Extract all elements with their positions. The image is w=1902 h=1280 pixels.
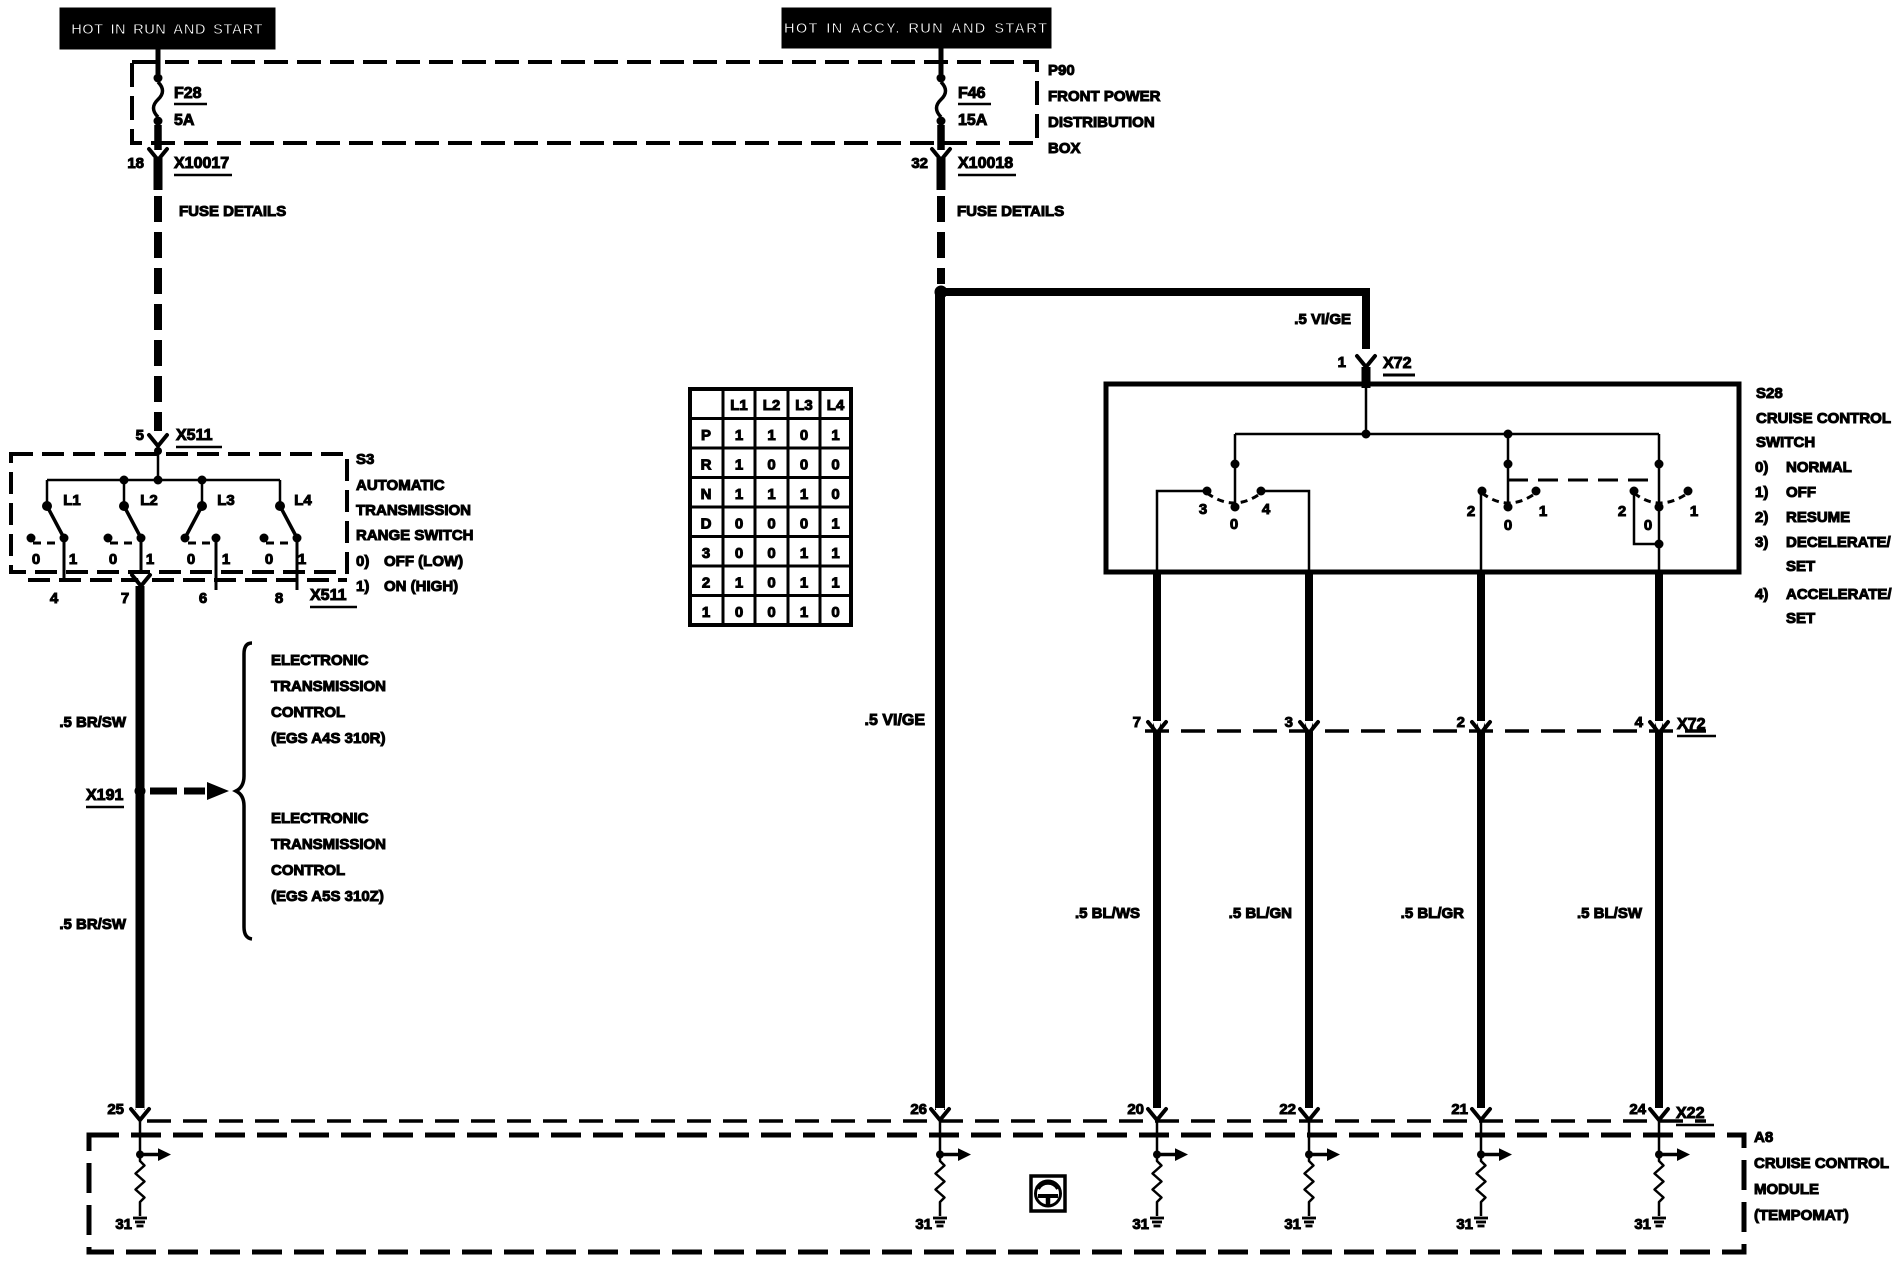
- svg-text:1: 1: [831, 575, 839, 592]
- svg-text:X72: X72: [1677, 716, 1706, 733]
- svg-text:SWITCH: SWITCH: [1756, 434, 1815, 451]
- svg-text:(EGS A5S 310Z): (EGS A5S 310Z): [271, 888, 384, 905]
- svg-text:R: R: [701, 457, 712, 474]
- svg-text:0: 0: [735, 604, 743, 621]
- svg-text:1: 1: [69, 551, 77, 568]
- svg-text:2: 2: [1618, 503, 1626, 520]
- svg-text:21: 21: [1451, 1101, 1468, 1118]
- svg-text:P: P: [701, 427, 711, 444]
- svg-text:22: 22: [1279, 1101, 1296, 1118]
- svg-text:S3: S3: [356, 451, 374, 468]
- svg-text:1: 1: [800, 575, 808, 592]
- svg-text:25: 25: [107, 1101, 124, 1118]
- svg-text:.5 VI/GE: .5 VI/GE: [1294, 311, 1351, 328]
- svg-text:2: 2: [1467, 503, 1475, 520]
- svg-text:X511: X511: [310, 587, 347, 604]
- svg-text:.5 BL/GR: .5 BL/GR: [1401, 905, 1465, 922]
- svg-text:FUSE DETAILS: FUSE DETAILS: [957, 203, 1064, 220]
- svg-text:20: 20: [1127, 1101, 1144, 1118]
- svg-text:1: 1: [222, 551, 230, 568]
- svg-text:0: 0: [265, 551, 273, 568]
- svg-text:SET: SET: [1786, 558, 1815, 575]
- svg-text:0: 0: [1644, 517, 1652, 534]
- svg-text:4: 4: [1635, 714, 1644, 731]
- svg-text:F28: F28: [174, 85, 202, 102]
- svg-text:X10017: X10017: [174, 155, 229, 172]
- svg-text:L4: L4: [827, 397, 845, 414]
- svg-text:1: 1: [800, 486, 808, 503]
- svg-text:1: 1: [298, 551, 306, 568]
- svg-text:0: 0: [800, 427, 808, 444]
- svg-text:RESUME: RESUME: [1786, 509, 1850, 526]
- svg-text:0: 0: [767, 604, 775, 621]
- svg-text:0: 0: [767, 457, 775, 474]
- svg-text:31: 31: [1284, 1216, 1301, 1233]
- svg-text:X10018: X10018: [958, 155, 1013, 172]
- svg-text:TRANSMISSION: TRANSMISSION: [271, 836, 386, 853]
- svg-text:D: D: [701, 516, 712, 533]
- svg-text:8: 8: [275, 590, 283, 607]
- svg-text:0: 0: [32, 551, 40, 568]
- svg-text:0: 0: [831, 486, 839, 503]
- svg-text:1: 1: [800, 604, 808, 621]
- svg-text:CRUISE CONTROL: CRUISE CONTROL: [1754, 1155, 1889, 1172]
- svg-text:1: 1: [831, 427, 839, 444]
- svg-text:HOT IN RUN AND START: HOT IN RUN AND START: [71, 21, 263, 38]
- svg-text:ACCELERATE/: ACCELERATE/: [1786, 586, 1892, 603]
- svg-text:L4: L4: [294, 492, 312, 509]
- svg-text:MODULE: MODULE: [1754, 1181, 1819, 1198]
- svg-text:1: 1: [800, 545, 808, 562]
- svg-text:1: 1: [831, 516, 839, 533]
- svg-text:0: 0: [767, 575, 775, 592]
- svg-text:32: 32: [911, 155, 928, 172]
- svg-text:0: 0: [767, 516, 775, 533]
- svg-text:DISTRIBUTION: DISTRIBUTION: [1048, 114, 1155, 131]
- svg-text:26: 26: [910, 1101, 927, 1118]
- svg-text:2): 2): [1755, 509, 1768, 526]
- svg-text:15A: 15A: [958, 112, 988, 129]
- svg-text:1: 1: [767, 486, 775, 503]
- svg-text:AUTOMATIC: AUTOMATIC: [356, 477, 445, 494]
- svg-text:L1: L1: [63, 492, 81, 509]
- svg-text:0: 0: [831, 604, 839, 621]
- svg-text:0: 0: [735, 545, 743, 562]
- svg-text:FUSE DETAILS: FUSE DETAILS: [179, 203, 286, 220]
- svg-text:L2: L2: [140, 492, 158, 509]
- svg-text:1): 1): [1755, 484, 1768, 501]
- svg-text:18: 18: [127, 155, 144, 172]
- svg-text:31: 31: [115, 1216, 132, 1233]
- svg-text:X72: X72: [1383, 355, 1412, 372]
- svg-text:NORMAL: NORMAL: [1786, 459, 1852, 476]
- svg-text:24: 24: [1629, 1101, 1646, 1118]
- svg-text:F46: F46: [958, 85, 986, 102]
- svg-text:7: 7: [1133, 714, 1141, 731]
- svg-text:1: 1: [1539, 503, 1547, 520]
- svg-text:2: 2: [702, 575, 710, 592]
- svg-text:RANGE SWITCH: RANGE SWITCH: [356, 527, 474, 544]
- svg-text:0): 0): [1755, 459, 1768, 476]
- svg-text:L1: L1: [730, 397, 748, 414]
- svg-text:ELECTRONIC: ELECTRONIC: [271, 652, 369, 669]
- svg-text:0: 0: [767, 545, 775, 562]
- svg-text:P90: P90: [1048, 62, 1075, 79]
- svg-text:31: 31: [915, 1216, 932, 1233]
- svg-text:.5 BL/GN: .5 BL/GN: [1229, 905, 1292, 922]
- svg-text:FRONT POWER: FRONT POWER: [1048, 88, 1161, 105]
- svg-text:5A: 5A: [174, 112, 195, 129]
- svg-text:ON (HIGH): ON (HIGH): [384, 578, 458, 595]
- svg-text:0: 0: [735, 516, 743, 533]
- svg-text:X191: X191: [86, 787, 123, 804]
- svg-text:1: 1: [767, 427, 775, 444]
- svg-text:OFF: OFF: [1786, 484, 1816, 501]
- svg-text:X511: X511: [176, 427, 213, 444]
- svg-text:31: 31: [1456, 1216, 1473, 1233]
- svg-text:4: 4: [50, 590, 59, 607]
- svg-text:X22: X22: [1676, 1105, 1705, 1122]
- svg-text:SET: SET: [1786, 610, 1815, 627]
- svg-text:TRANSMISSION: TRANSMISSION: [356, 502, 471, 519]
- svg-text:3): 3): [1755, 534, 1768, 551]
- svg-text:DECELERATE/: DECELERATE/: [1786, 534, 1892, 551]
- svg-text:1: 1: [831, 545, 839, 562]
- svg-text:0: 0: [831, 457, 839, 474]
- svg-text:4): 4): [1755, 586, 1768, 603]
- svg-text:BOX: BOX: [1048, 140, 1081, 157]
- svg-text:.5 BL/WS: .5 BL/WS: [1075, 905, 1140, 922]
- svg-text:0): 0): [356, 553, 369, 570]
- svg-text:31: 31: [1132, 1216, 1149, 1233]
- svg-text:A8: A8: [1754, 1129, 1773, 1146]
- svg-text:.5 VI/GE: .5 VI/GE: [865, 712, 926, 729]
- svg-text:.5 BR/SW: .5 BR/SW: [59, 916, 127, 933]
- svg-text:TRANSMISSION: TRANSMISSION: [271, 678, 386, 695]
- svg-text:L3: L3: [217, 492, 235, 509]
- svg-text:.5 BL/SW: .5 BL/SW: [1577, 905, 1643, 922]
- svg-text:3: 3: [1285, 714, 1293, 731]
- svg-text:3: 3: [1199, 501, 1207, 518]
- svg-text:2: 2: [1457, 714, 1465, 731]
- svg-text:1: 1: [735, 457, 743, 474]
- svg-text:1: 1: [1338, 354, 1346, 371]
- svg-text:0: 0: [1504, 517, 1512, 534]
- svg-text:0: 0: [800, 457, 808, 474]
- svg-text:1: 1: [735, 575, 743, 592]
- svg-text:OFF (LOW): OFF (LOW): [384, 553, 463, 570]
- svg-text:CONTROL: CONTROL: [271, 862, 345, 879]
- svg-text:3: 3: [702, 545, 710, 562]
- svg-text:1: 1: [735, 427, 743, 444]
- svg-text:HOT IN ACCY. RUN AND START: HOT IN ACCY. RUN AND START: [784, 20, 1048, 37]
- svg-text:L2: L2: [763, 397, 781, 414]
- svg-text:CRUISE CONTROL: CRUISE CONTROL: [1756, 410, 1891, 427]
- svg-text:0: 0: [187, 551, 195, 568]
- svg-text:6: 6: [199, 590, 207, 607]
- svg-text:0: 0: [1230, 516, 1238, 533]
- svg-text:(TEMPOMAT): (TEMPOMAT): [1754, 1207, 1849, 1224]
- svg-text:0: 0: [109, 551, 117, 568]
- svg-text:1: 1: [1690, 503, 1698, 520]
- svg-text:(EGS A4S 310R): (EGS A4S 310R): [271, 730, 386, 747]
- svg-text:L3: L3: [795, 397, 813, 414]
- svg-text:1: 1: [702, 604, 710, 621]
- svg-text:31: 31: [1634, 1216, 1651, 1233]
- svg-text:1): 1): [356, 578, 369, 595]
- svg-text:5: 5: [136, 427, 144, 444]
- svg-text:S28: S28: [1756, 385, 1783, 402]
- svg-text:ELECTRONIC: ELECTRONIC: [271, 810, 369, 827]
- svg-text:7: 7: [121, 590, 129, 607]
- svg-text:.5 BR/SW: .5 BR/SW: [59, 714, 127, 731]
- svg-text:4: 4: [1262, 501, 1271, 518]
- svg-text:CONTROL: CONTROL: [271, 704, 345, 721]
- svg-text:1: 1: [146, 551, 154, 568]
- svg-text:N: N: [701, 486, 712, 503]
- svg-text:1: 1: [735, 486, 743, 503]
- svg-text:0: 0: [800, 516, 808, 533]
